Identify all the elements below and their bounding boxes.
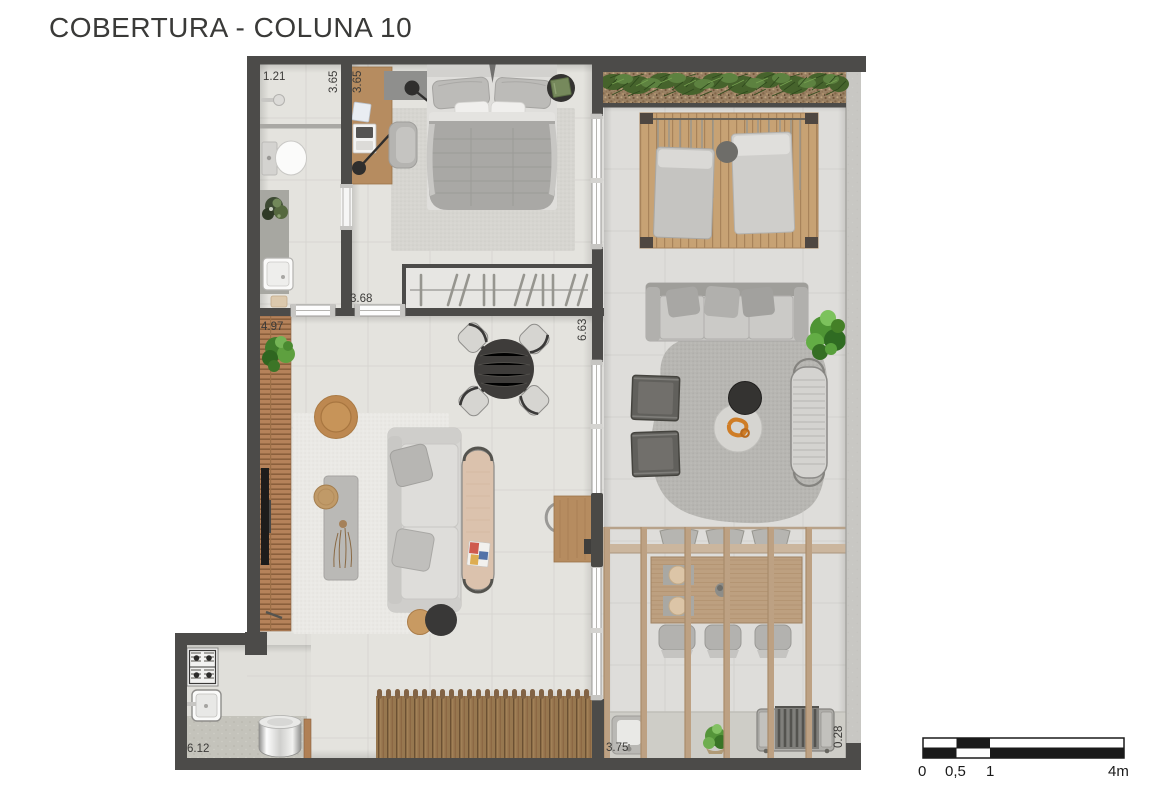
svg-text:3.75: 3.75 — [606, 742, 628, 754]
svg-text:3.65: 3.65 — [328, 71, 340, 93]
svg-text:4m: 4m — [1108, 763, 1129, 780]
svg-text:3.68: 3.68 — [350, 293, 372, 305]
svg-text:1.21: 1.21 — [263, 71, 285, 83]
svg-text:6.12: 6.12 — [187, 743, 209, 755]
svg-text:4.97: 4.97 — [261, 321, 283, 333]
svg-text:1: 1 — [986, 763, 994, 780]
svg-text:3.65: 3.65 — [352, 71, 364, 93]
svg-text:0.28: 0.28 — [833, 726, 845, 748]
svg-text:6.63: 6.63 — [577, 319, 589, 341]
svg-text:0,5: 0,5 — [945, 763, 966, 780]
svg-text:COBERTURA - COLUNA 10: COBERTURA - COLUNA 10 — [49, 12, 412, 43]
svg-text:0: 0 — [918, 763, 926, 780]
